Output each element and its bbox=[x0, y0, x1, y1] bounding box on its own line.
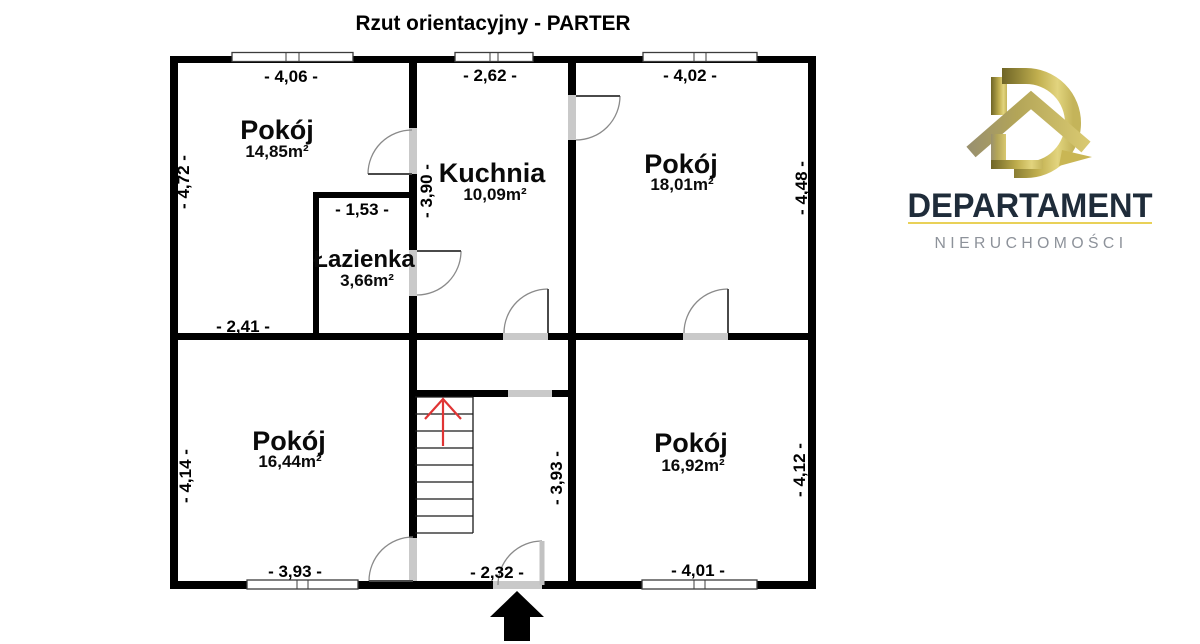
room4-area: 16,92m² bbox=[661, 456, 725, 475]
window-room1 bbox=[232, 53, 353, 62]
dim-top-left: - 4,06 - bbox=[264, 67, 318, 86]
dim-right-lower: - 4,12 - bbox=[790, 443, 809, 497]
dim-bottom-left: - 3,93 - bbox=[268, 562, 322, 581]
door-opening-kitchen bbox=[503, 333, 548, 340]
bathroom-name: Łazienka bbox=[313, 246, 415, 273]
wall-hall-room4 bbox=[568, 340, 576, 581]
wall-bathroom-top bbox=[313, 192, 417, 198]
agency-logo: DEPARTAMENT NIERUCHOMOŚCI bbox=[908, 76, 1153, 252]
dim-bathroom-width: - 1,53 - bbox=[335, 200, 389, 219]
door-arc bbox=[369, 537, 413, 581]
brand-subtitle: NIERUCHOMOŚCI bbox=[935, 233, 1128, 252]
door-opening-room2 bbox=[568, 95, 576, 140]
outer-wall-left bbox=[170, 56, 178, 589]
room3-area: 16,44m² bbox=[258, 452, 322, 471]
door-arc bbox=[368, 130, 412, 174]
kitchen-name: Kuchnia bbox=[439, 158, 546, 188]
plan-title: Rzut orientacyjny - PARTER bbox=[356, 12, 631, 35]
door-room2 bbox=[576, 96, 620, 140]
logo-house-base bbox=[991, 160, 1043, 169]
door-room3 bbox=[369, 537, 413, 581]
door-room2-lower bbox=[684, 289, 728, 333]
dim-top-right: - 4,02 - bbox=[663, 66, 717, 85]
room4-name: Pokój bbox=[654, 428, 728, 458]
door-room1 bbox=[368, 130, 412, 174]
room2-area: 18,01m² bbox=[650, 175, 714, 194]
dim-kitchen-wall: - 3,90 - bbox=[417, 164, 436, 218]
brand-name: DEPARTAMENT bbox=[908, 187, 1153, 225]
brand-underline bbox=[908, 222, 1152, 224]
door-bathroom bbox=[417, 251, 461, 295]
dim-top-middle: - 2,62 - bbox=[463, 66, 517, 85]
entrance-arrow-icon bbox=[490, 591, 544, 641]
door-arc bbox=[504, 289, 548, 333]
window-room3 bbox=[247, 580, 358, 589]
window-room2 bbox=[643, 53, 757, 62]
door-opening-room2-lower bbox=[683, 333, 728, 340]
dim-bottom-right: - 4,01 - bbox=[671, 561, 725, 580]
dim-entrance-width: - 2,32 - bbox=[470, 563, 524, 582]
floor-plan-page: Rzut orientacyjny - PARTER bbox=[0, 0, 1200, 644]
dim-hall-height: - 3,93 - bbox=[547, 451, 566, 505]
dim-right-upper: - 4,48 - bbox=[792, 161, 811, 215]
room1-name: Pokój bbox=[240, 115, 314, 145]
door-opening-room3 bbox=[409, 538, 417, 581]
window-room4 bbox=[642, 580, 757, 589]
logo-d-tail bbox=[1059, 150, 1092, 166]
kitchen-area: 10,09m² bbox=[463, 185, 527, 204]
logo-house-d-icon bbox=[971, 76, 1092, 170]
floor-plan-svg: Rzut orientacyjny - PARTER bbox=[0, 0, 1200, 644]
hall-passage-opening bbox=[508, 390, 552, 397]
dim-left-lower: - 4,14 - bbox=[176, 449, 195, 503]
room1-area: 14,85m² bbox=[245, 142, 309, 161]
door-opening-room1 bbox=[409, 128, 417, 174]
window-kitchen bbox=[455, 53, 533, 62]
door-kitchen bbox=[504, 289, 548, 333]
outer-wall-right bbox=[808, 56, 816, 589]
entrance-opening bbox=[493, 581, 542, 589]
bathroom-area: 3,66m² bbox=[340, 271, 394, 290]
door-arc bbox=[417, 251, 461, 295]
staircase bbox=[415, 397, 473, 533]
door-arc bbox=[576, 96, 620, 140]
dim-left-upper: - 4,72 - bbox=[174, 155, 193, 209]
dim-room1-bottom: - 2,41 - bbox=[216, 317, 270, 336]
door-arc bbox=[684, 289, 728, 333]
